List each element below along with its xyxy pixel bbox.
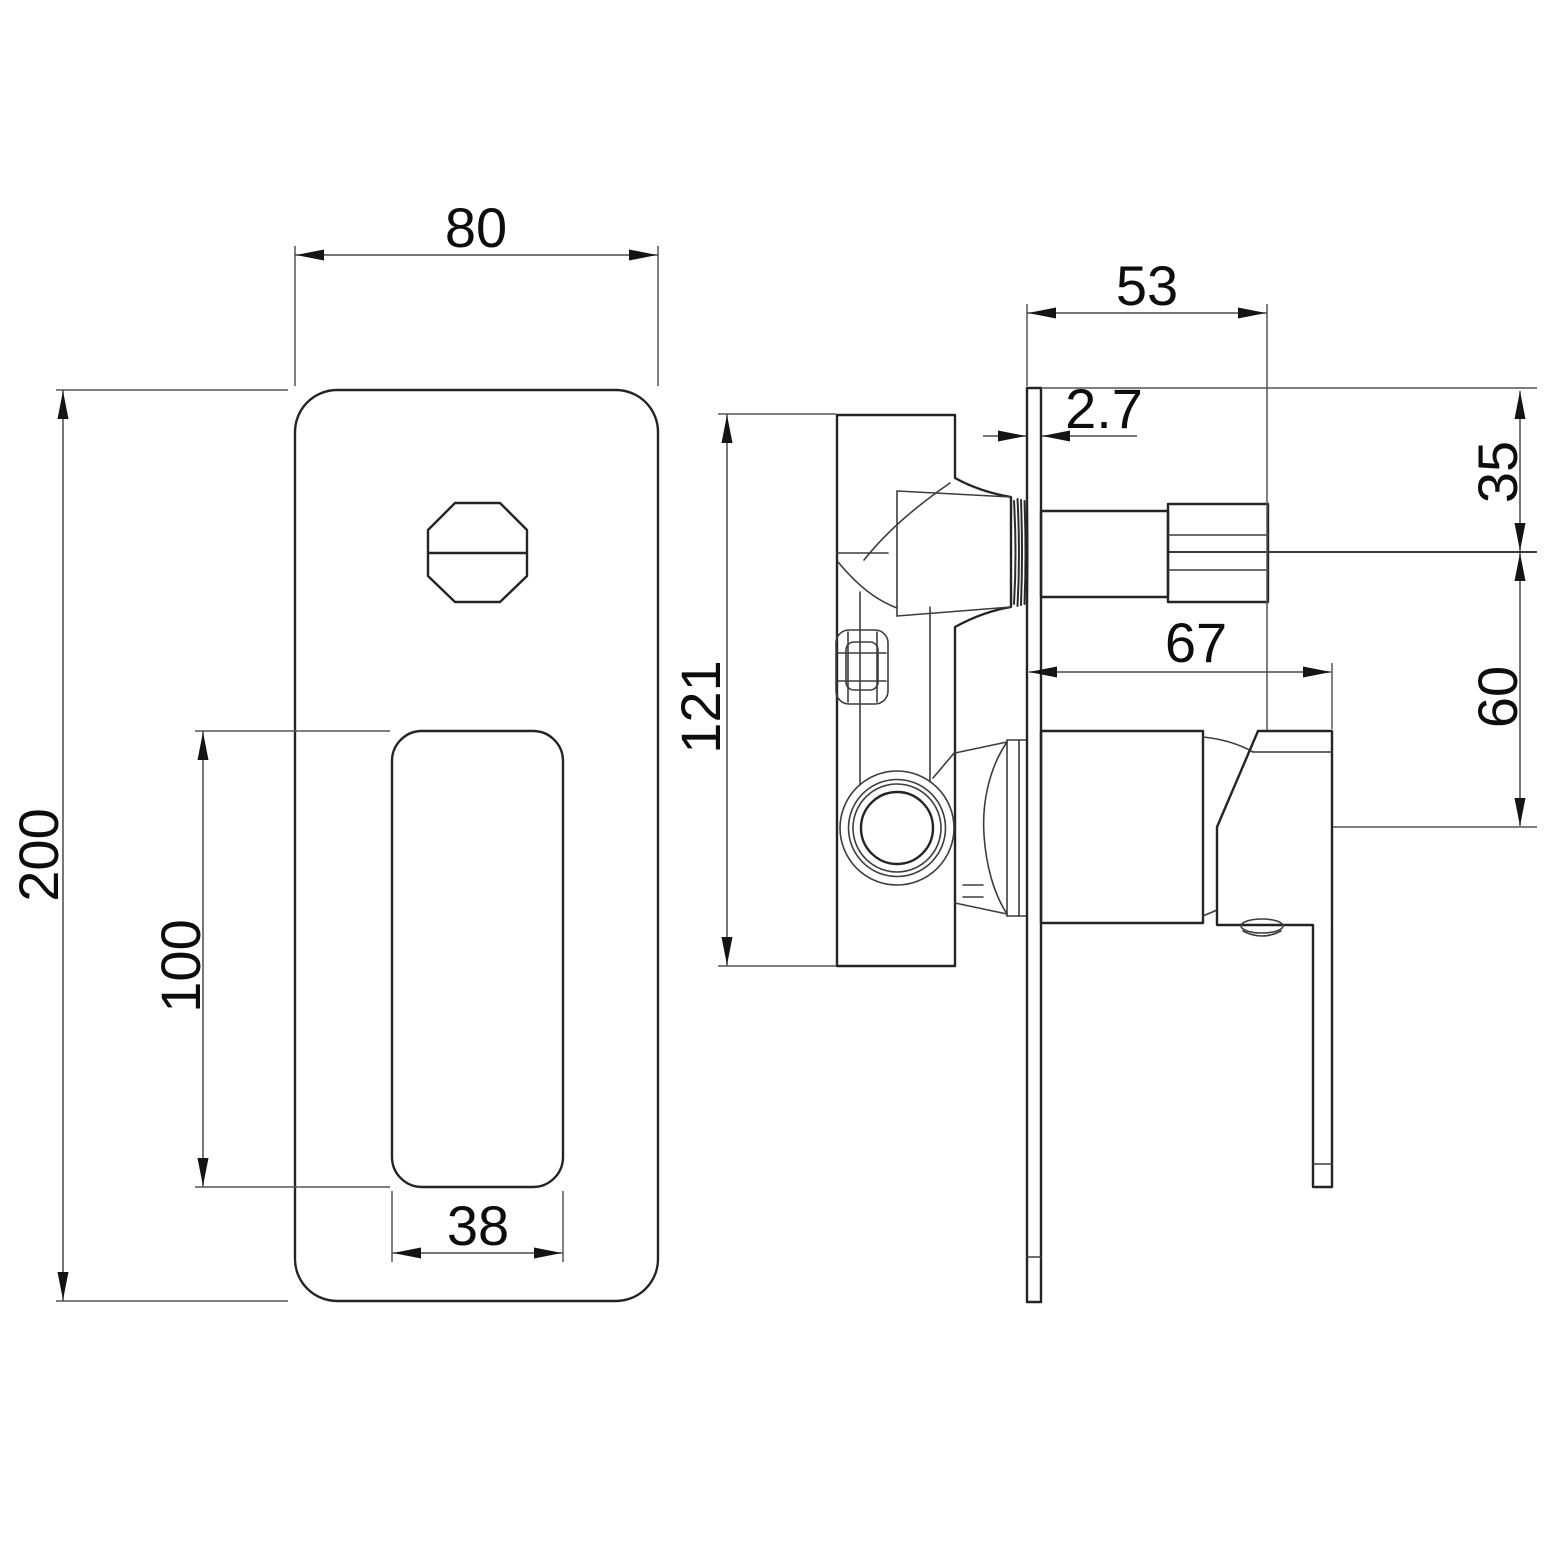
dim-axis-spacing: 60 bbox=[1333, 553, 1537, 827]
dim-label-handle-width: 38 bbox=[447, 1194, 509, 1257]
handle-connector-behind-plate bbox=[955, 740, 1027, 916]
technical-drawing-page: 80 200 100 38 bbox=[0, 0, 1545, 1545]
dim-plate-thickness: 2.7 bbox=[983, 377, 1143, 442]
front-view bbox=[295, 390, 658, 1301]
outlet-port-circles bbox=[840, 771, 954, 885]
side-handle bbox=[1041, 731, 1332, 1187]
side-view bbox=[836, 388, 1537, 1302]
dim-body-height: 121 bbox=[669, 414, 836, 966]
dim-label-body-height: 121 bbox=[669, 660, 732, 753]
spout-underside-curve bbox=[838, 562, 897, 608]
dim-label-handle-projection: 67 bbox=[1165, 611, 1227, 674]
front-wall-plate bbox=[295, 390, 658, 1301]
front-diverter-knob bbox=[428, 503, 527, 602]
dim-plate-width: 80 bbox=[295, 196, 658, 386]
dim-handle-height: 100 bbox=[149, 731, 390, 1187]
dim-label-axis-spacing: 60 bbox=[1466, 666, 1529, 728]
dim-handle-width: 38 bbox=[392, 1191, 563, 1262]
diverter-stem bbox=[1041, 504, 1268, 602]
side-wall-plate bbox=[1027, 388, 1041, 1302]
body-fillet-curve bbox=[864, 483, 950, 560]
handle-escutcheon bbox=[1041, 731, 1203, 923]
front-lever-handle bbox=[392, 731, 563, 1187]
body-diagonal-1 bbox=[933, 752, 955, 778]
dim-label-plate-thickness: 2.7 bbox=[1065, 377, 1143, 440]
dim-label-plate-height: 200 bbox=[7, 808, 70, 901]
dim-handle-projection: 67 bbox=[1029, 611, 1332, 729]
dim-label-axis-from-top: 35 bbox=[1466, 441, 1529, 503]
dim-stem-length: 53 bbox=[1027, 254, 1267, 730]
threaded-outlet bbox=[1014, 499, 1028, 606]
escutcheon-corner-arc bbox=[1203, 737, 1253, 752]
dim-plate-height: 200 bbox=[7, 390, 288, 1301]
technical-drawing-canvas: 80 200 100 38 bbox=[0, 0, 1545, 1545]
lever-handle-side bbox=[1217, 731, 1332, 1187]
side-dimensions: 121 53 2.7 35 bbox=[669, 254, 1537, 966]
dim-label-handle-height: 100 bbox=[149, 919, 212, 1012]
escutcheon-bottom-arc bbox=[1203, 910, 1217, 916]
dim-label-plate-width: 80 bbox=[445, 196, 507, 259]
inlet-boss bbox=[836, 630, 888, 704]
dim-label-stem-length: 53 bbox=[1116, 254, 1178, 317]
